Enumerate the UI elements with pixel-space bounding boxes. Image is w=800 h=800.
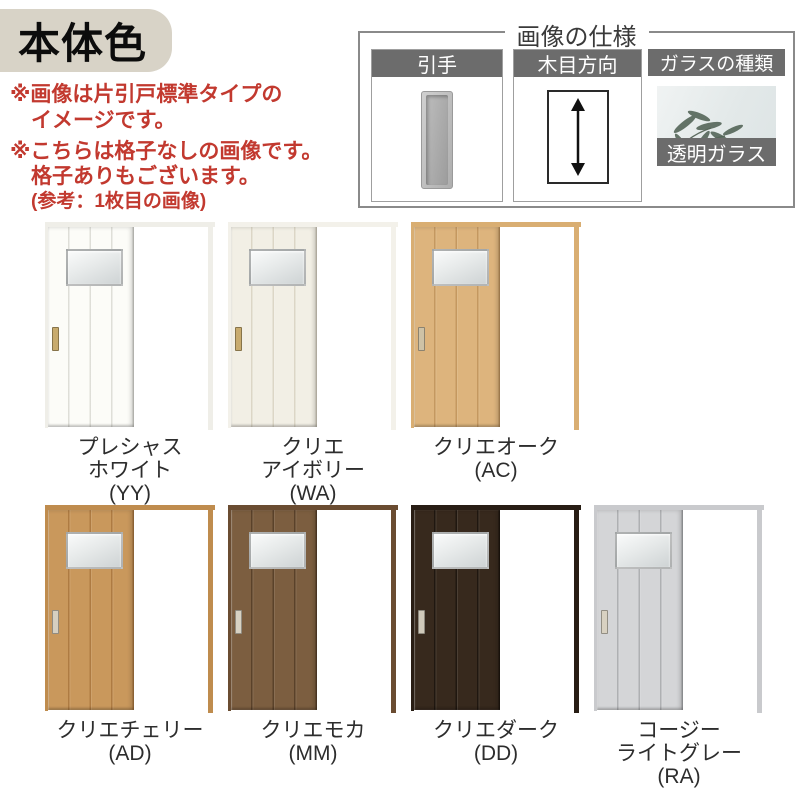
glass-type-header: ガラスの種類 — [648, 49, 785, 76]
door-image — [411, 222, 581, 430]
door-swatch-dd: クリエダーク(DD) — [411, 505, 581, 788]
door-color-label-line: コージー — [594, 719, 764, 742]
spec-panel-pull-handle: 引手 — [371, 49, 503, 202]
door-glass-window — [615, 532, 672, 569]
door-color-label-line: (MM) — [228, 742, 398, 765]
glass-sample-image: 透明ガラス — [657, 86, 776, 166]
door-swatch-ac: クリエオーク(AC) — [411, 222, 581, 505]
door-frame-left — [228, 505, 231, 711]
door-color-label-line: (DD) — [411, 742, 581, 765]
door-handle — [235, 327, 242, 351]
pull-handle-icon — [421, 91, 453, 189]
door-glass-window — [432, 532, 489, 569]
door-color-label: クリエダーク(DD) — [411, 719, 581, 765]
door-glass-window — [432, 249, 489, 286]
door-color-label-line: (RA) — [594, 765, 764, 788]
door-image — [45, 505, 215, 713]
door-frame-right — [574, 222, 579, 430]
glass-type-footer: 透明ガラス — [657, 138, 776, 166]
note-line: イメージです。 — [10, 108, 282, 134]
spec-panel-glass-type: ガラスの種類 透明ガラス — [648, 49, 785, 202]
page-title: 本体色 — [0, 10, 147, 71]
grain-direction-door-outline — [547, 90, 609, 184]
door-frame-top — [594, 505, 764, 510]
note-standard-type: ※画像は片引戸標準タイプの イメージです。 — [10, 82, 282, 134]
grain-direction-header: 木目方向 — [514, 50, 641, 77]
pull-handle-header: 引手 — [372, 50, 502, 77]
note-line: (参考：1枚目の画像) — [10, 189, 322, 214]
door-frame-top — [228, 505, 398, 510]
door-glass-window — [66, 249, 123, 286]
door-color-label: クリエモカ(MM) — [228, 719, 398, 765]
door-frame-left — [411, 222, 414, 428]
note-line: ※画像は片引戸標準タイプの — [10, 82, 282, 108]
door-frame-right — [208, 222, 213, 430]
door-handle — [601, 610, 608, 634]
door-swatch-yy: プレシャスホワイト(YY) — [45, 222, 215, 505]
door-frame-left — [228, 222, 231, 428]
door-color-label-line: ホワイト — [45, 459, 215, 482]
door-handle — [418, 610, 425, 634]
door-frame-left — [594, 505, 597, 711]
door-color-row-1: プレシャスホワイト(YY) クリエアイボリー(WA) クリエオーク(AC) — [45, 222, 581, 505]
door-color-label-line: プレシャス — [45, 436, 215, 459]
door-color-label-line: (AC) — [411, 459, 581, 482]
door-image — [411, 505, 581, 713]
door-handle — [235, 610, 242, 634]
spec-panel-grain-direction: 木目方向 — [513, 49, 642, 202]
grain-direction-arrow-icon — [567, 98, 589, 176]
door-image — [45, 222, 215, 430]
door-frame-left — [45, 222, 48, 428]
door-frame-top — [45, 222, 215, 227]
door-swatch-mm: クリエモカ(MM) — [228, 505, 398, 788]
note-line: 格子ありもございます。 — [10, 164, 322, 189]
door-image — [228, 222, 398, 430]
door-frame-top — [411, 505, 581, 510]
door-handle — [418, 327, 425, 351]
door-color-label-line: クリエモカ — [228, 719, 398, 742]
door-frame-left — [45, 505, 48, 711]
door-handle — [52, 327, 59, 351]
door-color-label: クリエアイボリー(WA) — [228, 436, 398, 505]
door-glass-window — [249, 249, 306, 286]
door-color-label-line: (AD) — [45, 742, 215, 765]
door-color-label: クリエオーク(AC) — [411, 436, 581, 482]
door-color-label-line: (WA) — [228, 482, 398, 505]
door-glass-window — [66, 532, 123, 569]
door-frame-right — [757, 505, 762, 713]
door-frame-right — [574, 505, 579, 713]
door-glass-window — [249, 532, 306, 569]
door-handle — [52, 610, 59, 634]
image-spec-box: 画像の仕様 引手 木目方向 ガラスの種類 — [358, 31, 795, 208]
door-color-label-line: クリエ — [228, 436, 398, 459]
door-frame-right — [391, 505, 396, 713]
note-line: ※こちらは格子なしの画像です。 — [10, 139, 322, 164]
door-color-label-line: ライトグレー — [594, 742, 764, 765]
door-frame-right — [391, 222, 396, 430]
door-swatch-wa: クリエアイボリー(WA) — [228, 222, 398, 505]
door-color-label-line: クリエオーク — [411, 436, 581, 459]
image-spec-title: 画像の仕様 — [505, 17, 649, 52]
door-color-label-line: アイボリー — [228, 459, 398, 482]
door-color-label-line: (YY) — [45, 482, 215, 505]
door-swatch-ra: コージーライトグレー(RA) — [594, 505, 764, 788]
door-color-row-2: クリエチェリー(AD) クリエモカ(MM) クリエダーク(DD) — [45, 505, 764, 788]
door-color-label: コージーライトグレー(RA) — [594, 719, 764, 788]
door-frame-top — [411, 222, 581, 227]
door-frame-left — [411, 505, 414, 711]
door-color-label-line: クリエダーク — [411, 719, 581, 742]
door-frame-right — [208, 505, 213, 713]
door-image — [594, 505, 764, 713]
door-image — [228, 505, 398, 713]
page-title-badge: 本体色 — [0, 9, 172, 72]
door-color-label: プレシャスホワイト(YY) — [45, 436, 215, 505]
door-color-label-line: クリエチェリー — [45, 719, 215, 742]
door-color-label: クリエチェリー(AD) — [45, 719, 215, 765]
door-frame-top — [228, 222, 398, 227]
note-no-lattice: ※こちらは格子なしの画像です。 格子ありもございます。 (参考：1枚目の画像) — [10, 139, 322, 214]
door-frame-top — [45, 505, 215, 510]
door-swatch-ad: クリエチェリー(AD) — [45, 505, 215, 788]
